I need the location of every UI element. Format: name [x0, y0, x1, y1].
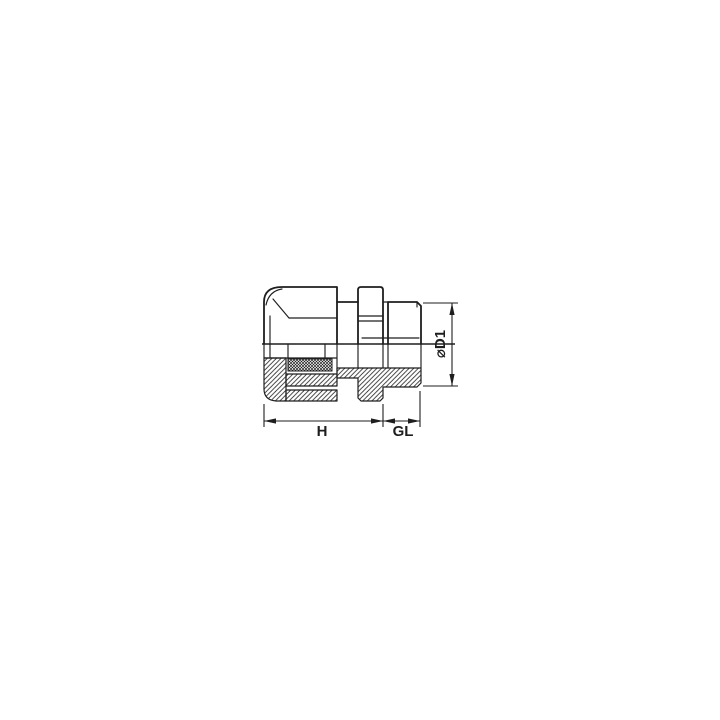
drawing-canvas: H GL ⌀D1: [0, 0, 720, 720]
dimension-h: H: [264, 404, 383, 440]
insert-section-layer: [286, 374, 337, 386]
h-arrow-left: [264, 418, 276, 423]
h-arrow-right: [371, 418, 383, 423]
seal-insert-section: [288, 359, 332, 371]
body-section: [337, 368, 421, 401]
dimension-label-d1: ⌀D1: [432, 330, 449, 358]
cap-nut-outline: [264, 287, 337, 344]
dimension-label-h: H: [317, 423, 328, 440]
cable-gland-technical-drawing: H GL ⌀D1: [0, 0, 720, 720]
cap-section-wall: [264, 358, 286, 401]
dimension-label-gl: GL: [393, 423, 414, 440]
upper-outline-view: [264, 287, 421, 344]
cap-section-bottom-wall: [286, 390, 337, 401]
d1-arrow-bottom: [449, 374, 454, 386]
lower-section-view: [264, 344, 421, 401]
d1-arrow-top: [449, 303, 454, 315]
cap-dome-edge: [273, 299, 289, 318]
dimension-gl: GL: [383, 391, 420, 440]
